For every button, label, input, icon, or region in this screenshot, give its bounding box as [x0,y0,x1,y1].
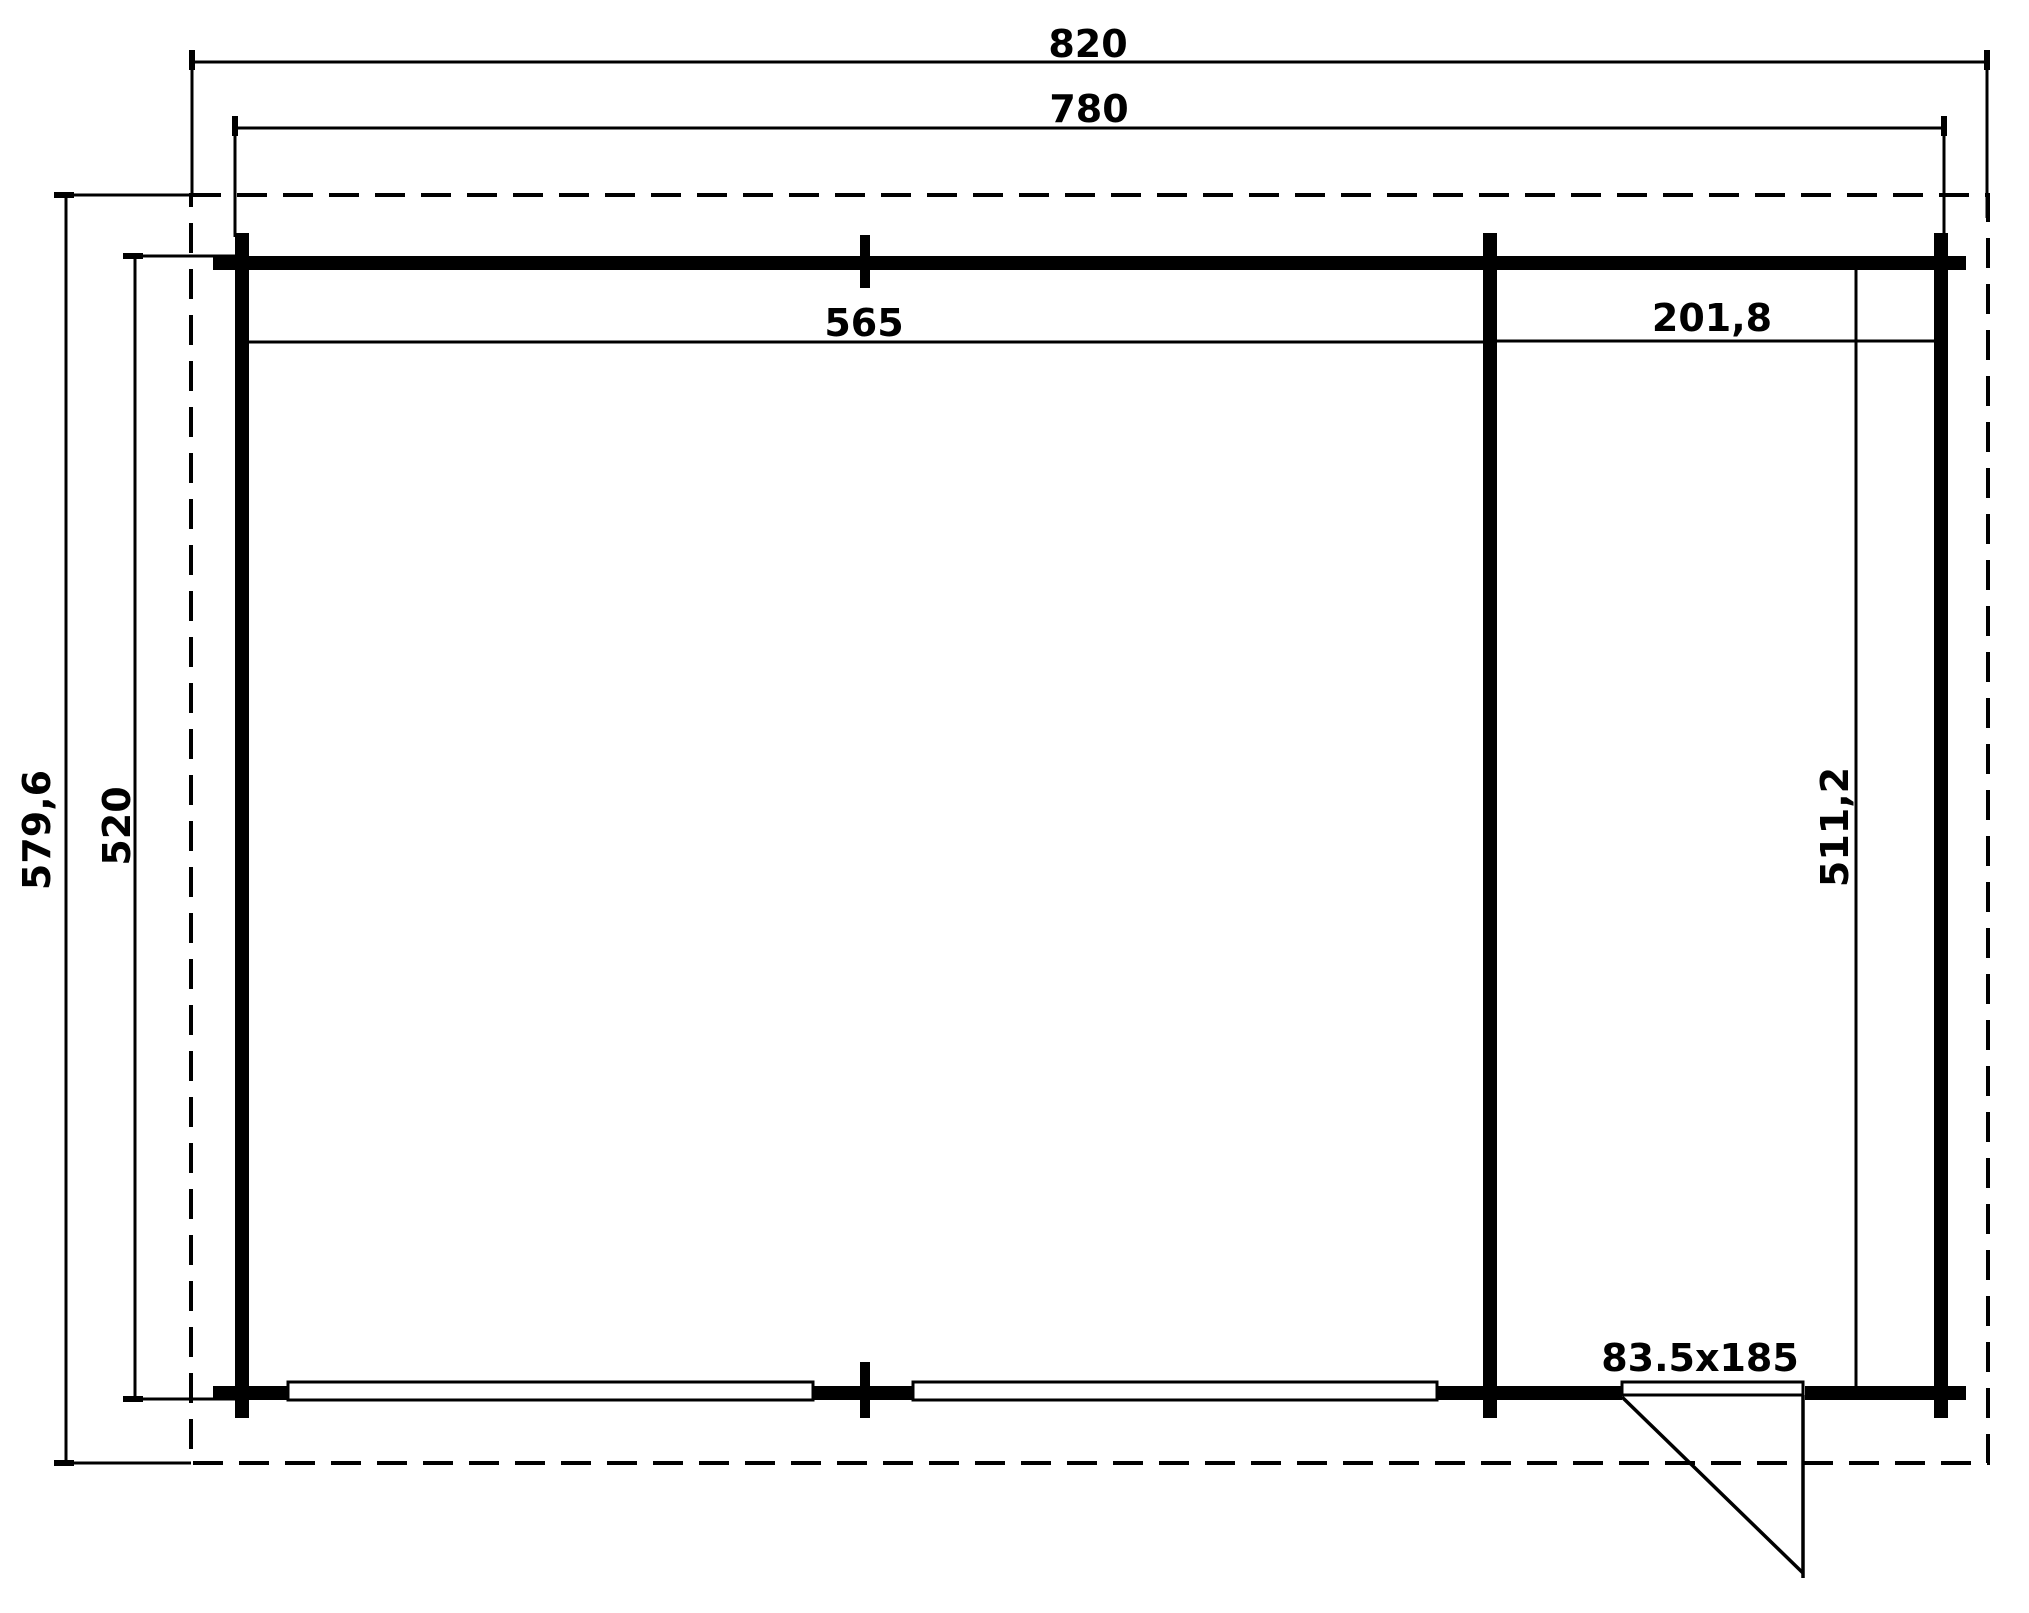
dimension-labels: 820 780 565 201,8 579,6 520 511,2 83.5x1… [15,22,1857,1380]
dim-label-wall-outer-depth: 520 [95,786,139,865]
door-opening [1622,1382,1803,1395]
log-joint-tick-bottom [860,1362,870,1418]
window-right [913,1382,1437,1400]
floor-plan: 820 780 565 201,8 579,6 520 511,2 83.5x1… [0,0,2029,1613]
door [1622,1382,1803,1578]
dim-label-side-room-width: 201,8 [1652,296,1772,340]
dim-label-main-room-width: 565 [824,301,903,345]
dim-label-door-size: 83.5x185 [1601,1336,1799,1380]
wall-divider [1483,233,1497,1418]
dim-label-overall-depth: 579,6 [15,770,59,890]
wall-right [1934,233,1948,1418]
dim-line-520 [135,256,235,1399]
log-joint-tick-top [860,235,870,288]
wall-bottom-segment-3 [1437,1386,1622,1400]
dim-label-overall-width: 820 [1048,22,1127,66]
roof-overhang-outline [191,195,1988,1463]
window-left [288,1382,813,1400]
wall-top [213,256,1966,270]
dim-line-780 [235,128,1944,237]
floor-plan-drawing: 820 780 565 201,8 579,6 520 511,2 83.5x1… [0,0,2029,1613]
door-swing [1622,1397,1803,1573]
dim-label-side-room-depth: 511,2 [1813,767,1857,887]
wall-left [235,233,249,1418]
dim-label-wall-outer-width: 780 [1049,87,1128,131]
walls [213,233,1966,1418]
